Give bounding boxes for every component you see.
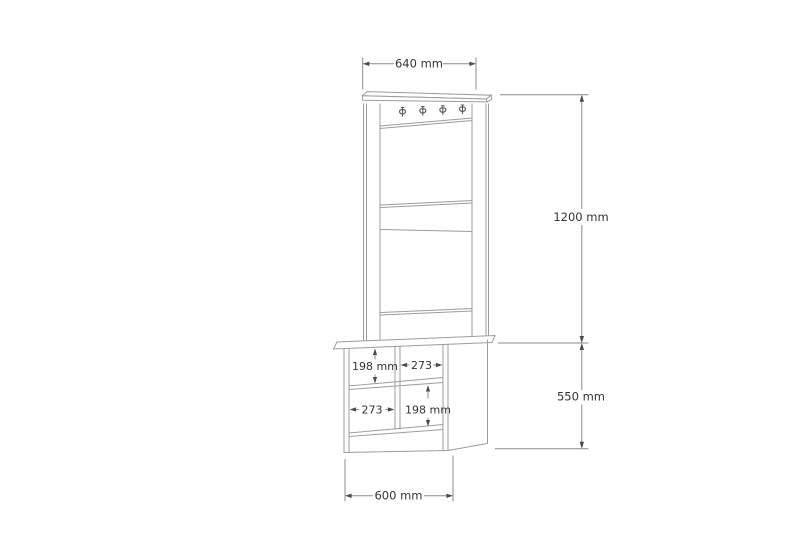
arrowhead-icon: [373, 377, 377, 384]
coat-hooks: [400, 105, 466, 116]
arrowhead-icon: [580, 336, 584, 343]
arrowhead-icon: [388, 407, 395, 411]
dim-bottom-left-compartment-label: 273: [362, 403, 383, 416]
arrowhead-icon: [363, 62, 370, 66]
crossbar-edge: [380, 203, 472, 208]
bench-top-face: [334, 336, 496, 350]
shelf-edge: [349, 425, 443, 434]
dim-overall-width: 640 mm: [363, 57, 476, 90]
dim-lower-height-label: 550 mm: [557, 390, 605, 404]
bottom-shelf: [349, 425, 443, 437]
bottom-rail: [380, 309, 472, 316]
dim-base-width: 600 mm: [345, 456, 453, 503]
dim-upper-height-label: 1200 mm: [553, 210, 608, 224]
arrowhead-icon: [401, 363, 408, 367]
dim-bottom-right-compartment: 198 mm: [405, 385, 451, 427]
dim-top-left-compartment: 198 mm: [352, 349, 398, 384]
arrowhead-icon: [580, 343, 584, 350]
dim-overall-width-label: 640 mm: [395, 57, 443, 71]
dim-lower-height: 550 mm: [495, 343, 605, 449]
drawing-page: 640 mm 1200 mm 550 mm 600 mm 198 mm: [0, 0, 800, 533]
left-post: [364, 104, 381, 340]
bench-top: [334, 336, 496, 350]
crossbar-edge: [380, 230, 472, 232]
dim-base-width-label: 600 mm: [374, 489, 422, 503]
right-post: [472, 104, 489, 338]
coat-hook-icon: [420, 107, 426, 116]
dim-top-right-compartment-label: 273: [411, 359, 432, 372]
arrowhead-icon: [426, 385, 430, 392]
arrowhead-icon: [580, 95, 584, 102]
arrowhead-icon: [350, 407, 357, 411]
top-board: [363, 92, 492, 102]
dim-upper-height: 1200 mm: [498, 95, 609, 343]
arrowhead-icon: [469, 62, 476, 66]
coat-hook-icon: [440, 106, 446, 115]
hook-rail: [380, 118, 472, 129]
furniture-dimension-drawing: 640 mm 1200 mm 550 mm 600 mm 198 mm: [0, 0, 800, 533]
arrowhead-icon: [446, 494, 453, 498]
center-divider: [395, 346, 400, 429]
arrowhead-icon: [436, 363, 443, 367]
dim-top-right-compartment: 273: [401, 359, 443, 372]
shelf-edge: [349, 378, 443, 387]
crossbar-edge: [380, 201, 472, 206]
arrowhead-icon: [373, 349, 377, 356]
top-shelf: [349, 378, 443, 390]
dim-bottom-right-compartment-label: 198 mm: [405, 403, 451, 416]
coat-hook-icon: [400, 108, 406, 117]
shelf-edge: [349, 430, 443, 437]
middle-crossbar: [380, 201, 472, 232]
cabinet-bottom-side-edge: [448, 444, 488, 451]
cabinet-body: [344, 340, 488, 453]
coat-hook-icon: [460, 105, 466, 114]
dim-bottom-left-compartment: 273: [350, 403, 395, 416]
arrowhead-icon: [345, 494, 352, 498]
dim-top-left-compartment-label: 198 mm: [352, 360, 398, 373]
hall-stand-drawing: [334, 92, 496, 453]
cabinet-bottom-edge: [344, 451, 448, 453]
arrowhead-icon: [580, 442, 584, 449]
